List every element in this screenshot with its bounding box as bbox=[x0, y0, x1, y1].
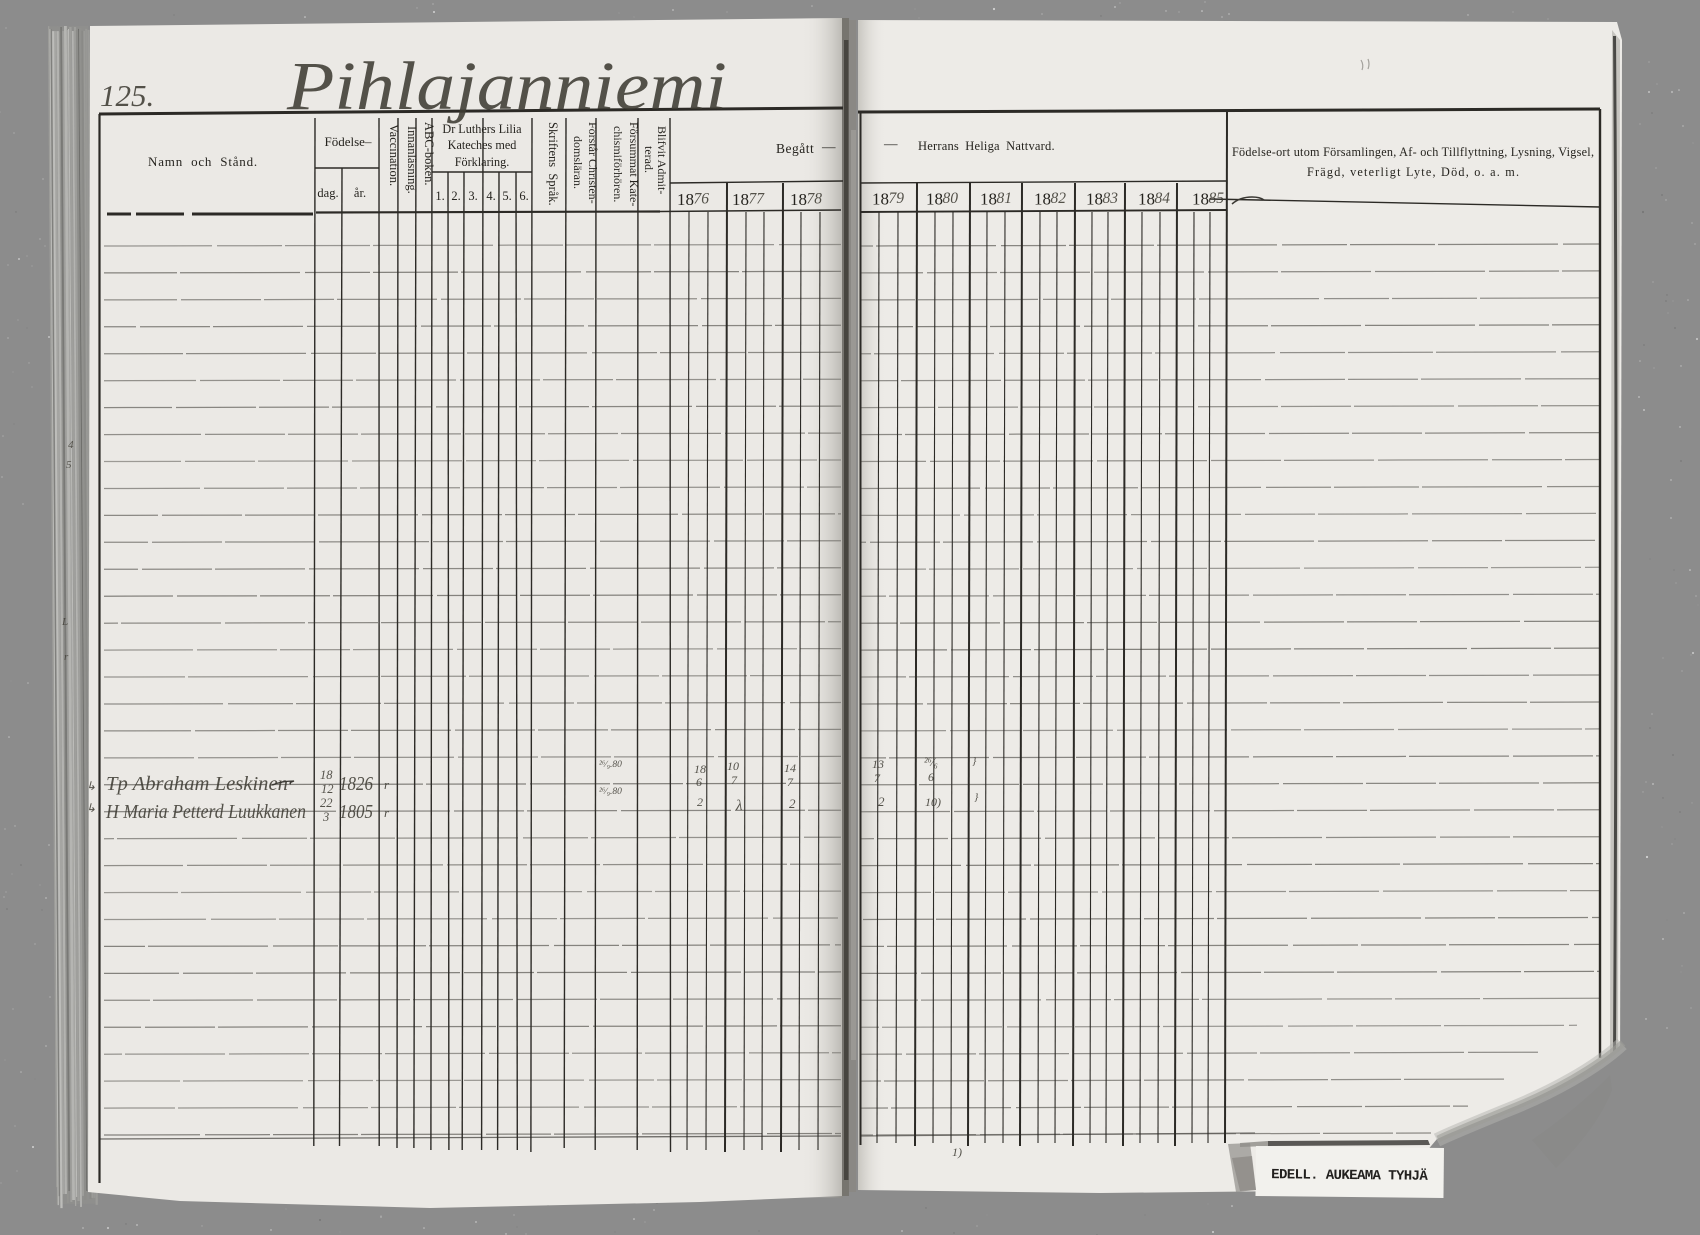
svg-text:terad.: terad. bbox=[642, 146, 656, 173]
svg-text:}: } bbox=[974, 791, 979, 803]
svg-text:r: r bbox=[64, 651, 69, 663]
svg-text:3.: 3. bbox=[468, 189, 477, 203]
svg-text:5.: 5. bbox=[502, 189, 511, 203]
svg-text:83: 83 bbox=[1103, 190, 1119, 207]
svg-text:Födelse-ort utom Församlingen,: Födelse-ort utom Församlingen, Af- och T… bbox=[1232, 145, 1594, 159]
svg-text:18: 18 bbox=[694, 762, 706, 776]
svg-text:Innanläsning.: Innanläsning. bbox=[405, 126, 419, 194]
svg-text:Vaccination.: Vaccination. bbox=[387, 124, 401, 186]
svg-text:L: L bbox=[61, 616, 68, 628]
svg-text:82: 82 bbox=[1051, 190, 1067, 207]
svg-text:Kateches med: Kateches med bbox=[448, 138, 517, 152]
svg-text:chismiförhören.: chismiförhören. bbox=[611, 126, 625, 202]
svg-text:5: 5 bbox=[66, 459, 72, 471]
svg-text:81: 81 bbox=[997, 190, 1013, 207]
svg-text:18: 18 bbox=[677, 190, 694, 209]
svg-text:18: 18 bbox=[1192, 190, 1209, 209]
svg-text:4.: 4. bbox=[486, 189, 495, 203]
svg-text:7: 7 bbox=[874, 771, 881, 785]
svg-text:18: 18 bbox=[790, 190, 807, 209]
svg-text:Herrans Heliga Nattvard.: Herrans Heliga Nattvard. bbox=[918, 139, 1055, 153]
svg-text:Dr Luthers Lilia: Dr Luthers Lilia bbox=[442, 122, 522, 136]
svg-text:1826: 1826 bbox=[339, 773, 373, 795]
svg-text:85: 85 bbox=[1209, 190, 1225, 207]
svg-text:Förstår Christen-: Förstår Christen- bbox=[586, 122, 600, 204]
svg-text:7: 7 bbox=[731, 773, 738, 787]
svg-text:dag.: dag. bbox=[317, 186, 338, 200]
svg-text:1): 1) bbox=[952, 1145, 962, 1159]
svg-text:—: — bbox=[821, 139, 836, 154]
svg-text:12: 12 bbox=[321, 782, 334, 796]
svg-text:Namn och Stånd.: Namn och Stånd. bbox=[148, 154, 258, 169]
svg-text:18: 18 bbox=[926, 190, 943, 209]
svg-text:Tp Abraham Leskinen: Tp Abraham Leskinen bbox=[106, 773, 288, 795]
svg-text:Försummat Kate-: Försummat Kate- bbox=[627, 122, 641, 206]
svg-text:²⁶∕₉.80: ²⁶∕₉.80 bbox=[599, 787, 622, 797]
svg-text:10: 10 bbox=[727, 759, 739, 773]
svg-text:domsläran.: domsläran. bbox=[571, 136, 585, 189]
svg-text:6: 6 bbox=[696, 775, 702, 789]
svg-text:år.: år. bbox=[354, 186, 366, 200]
svg-text:18: 18 bbox=[872, 190, 889, 209]
svg-text:2: 2 bbox=[878, 794, 885, 809]
svg-text:14: 14 bbox=[784, 761, 796, 775]
svg-text:18: 18 bbox=[1138, 190, 1155, 209]
svg-text:Skriftens Språk.: Skriftens Språk. bbox=[546, 122, 560, 206]
svg-text:2: 2 bbox=[697, 795, 703, 809]
svg-text:125.: 125. bbox=[100, 78, 154, 113]
svg-text:18: 18 bbox=[320, 768, 333, 782]
svg-text:Frägd, veterligt Lyte, Död, o.: Frägd, veterligt Lyte, Död, o. a. m. bbox=[1307, 165, 1519, 179]
svg-text:6.: 6. bbox=[519, 189, 528, 203]
svg-text:18: 18 bbox=[980, 190, 997, 209]
svg-text:6: 6 bbox=[928, 770, 934, 784]
svg-text:Pihlajanniemi: Pihlajanniemi bbox=[286, 48, 727, 124]
svg-text:3: 3 bbox=[322, 810, 329, 824]
svg-text:78: 78 bbox=[807, 191, 823, 208]
svg-text:7: 7 bbox=[787, 775, 794, 789]
svg-text:—: — bbox=[883, 136, 898, 151]
svg-text:ABC-boken.: ABC-boken. bbox=[422, 122, 436, 186]
svg-text:2.: 2. bbox=[451, 189, 460, 203]
svg-text:10): 10) bbox=[925, 795, 941, 809]
svg-text:Begått: Begått bbox=[776, 141, 814, 156]
svg-text:²⁶∕₆: ²⁶∕₆ bbox=[924, 755, 938, 769]
svg-text:18: 18 bbox=[1086, 190, 1103, 209]
svg-text:77: 77 bbox=[749, 191, 766, 208]
svg-text:Förklaring.: Förklaring. bbox=[455, 155, 510, 169]
svg-text:↳: ↳ bbox=[86, 779, 96, 793]
svg-text:18: 18 bbox=[732, 190, 749, 209]
svg-text:↳: ↳ bbox=[86, 801, 96, 815]
svg-text:13: 13 bbox=[872, 757, 884, 771]
svg-text:4: 4 bbox=[68, 439, 74, 451]
svg-text:}: } bbox=[972, 755, 977, 767]
svg-text:84: 84 bbox=[1155, 190, 1171, 207]
svg-text:18: 18 bbox=[1034, 190, 1051, 209]
svg-text:2: 2 bbox=[789, 796, 796, 811]
svg-text:22: 22 bbox=[320, 796, 333, 810]
svg-text:80: 80 bbox=[943, 190, 959, 207]
svg-text:H Maria Petterd Luukkanen: H Maria Petterd Luukkanen bbox=[105, 801, 306, 823]
svg-text:Födelse–: Födelse– bbox=[325, 134, 372, 149]
svg-text:²⁶∕₉.80: ²⁶∕₉.80 bbox=[599, 760, 622, 770]
svg-text:λ: λ bbox=[735, 798, 743, 814]
svg-text:79: 79 bbox=[889, 190, 905, 207]
svg-text:76: 76 bbox=[694, 191, 710, 208]
svg-text:1.: 1. bbox=[435, 189, 444, 203]
svg-text:1805: 1805 bbox=[339, 801, 373, 823]
svg-text:EDELL. AUKEAMA TYHJÄ: EDELL. AUKEAMA TYHJÄ bbox=[1271, 1166, 1428, 1185]
svg-text:Blifvit Admit-: Blifvit Admit- bbox=[655, 126, 669, 194]
